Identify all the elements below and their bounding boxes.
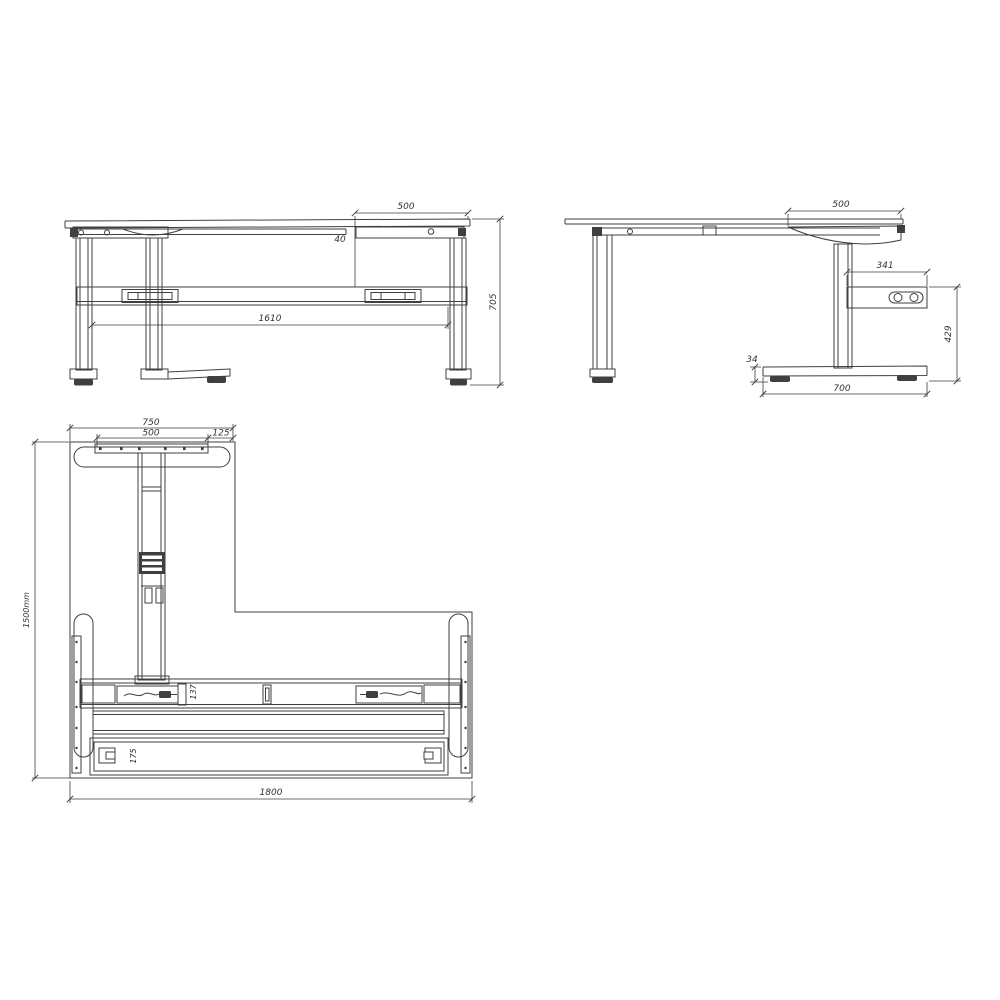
side-return-leg — [590, 235, 615, 383]
front-middle-leg — [146, 238, 162, 370]
dim-plan-overall-depth: 1500mm — [22, 592, 31, 628]
plan-main-beam — [80, 679, 462, 708]
dim-plan-beam-width: 137 — [189, 683, 198, 699]
dim-front-rail-gap: 40 — [334, 235, 346, 245]
dim-side-box-to-floor: 429 — [944, 325, 954, 342]
desk-frame-drawing: 500 40 1610 705 — [0, 0, 1000, 1000]
plan-return-foot — [74, 444, 230, 467]
front-elevation-view: 500 40 1610 705 — [65, 202, 504, 388]
dim-side-foot-height: 34 — [746, 355, 758, 365]
dim-side-foot-length: 700 — [833, 384, 850, 394]
dim-front-overall-height: 705 — [489, 293, 499, 310]
front-left-leg — [76, 238, 92, 370]
plan-rear-rail — [93, 711, 444, 734]
side-dimension-lines — [750, 208, 961, 397]
front-right-leg — [450, 238, 466, 370]
side-elevation-view: 500 341 429 34 700 — [565, 200, 961, 397]
plan-view: 750 500 125 1500mm 1800 137 175 — [22, 418, 475, 803]
dim-side-control-box: 341 — [876, 261, 893, 271]
side-main-leg — [834, 244, 852, 368]
dim-plan-bracket-width: 500 — [142, 429, 159, 439]
plan-bottom-rail — [90, 738, 448, 775]
dim-side-top-depth: 500 — [832, 200, 849, 210]
plan-desktop-outline — [70, 442, 472, 778]
side-undertop-rail — [592, 226, 880, 236]
dim-front-top-overhang: 500 — [397, 202, 414, 212]
technical-drawing-canvas: 500 40 1610 705 — [0, 0, 1000, 1000]
dim-plan-overall-width: 1800 — [260, 788, 283, 798]
plan-return-column — [135, 453, 169, 684]
dim-plan-rail-depth: 175 — [129, 748, 138, 763]
side-control-box — [847, 287, 927, 308]
dim-plan-return-width: 750 — [142, 418, 159, 428]
dim-plan-bracket-offset: 125 — [212, 429, 229, 439]
dim-front-frame-width: 1610 — [259, 314, 282, 324]
front-feet — [70, 369, 471, 386]
front-crossbar — [77, 287, 467, 305]
plan-dimension-lines — [32, 424, 475, 803]
front-undertop-rail — [70, 227, 466, 238]
